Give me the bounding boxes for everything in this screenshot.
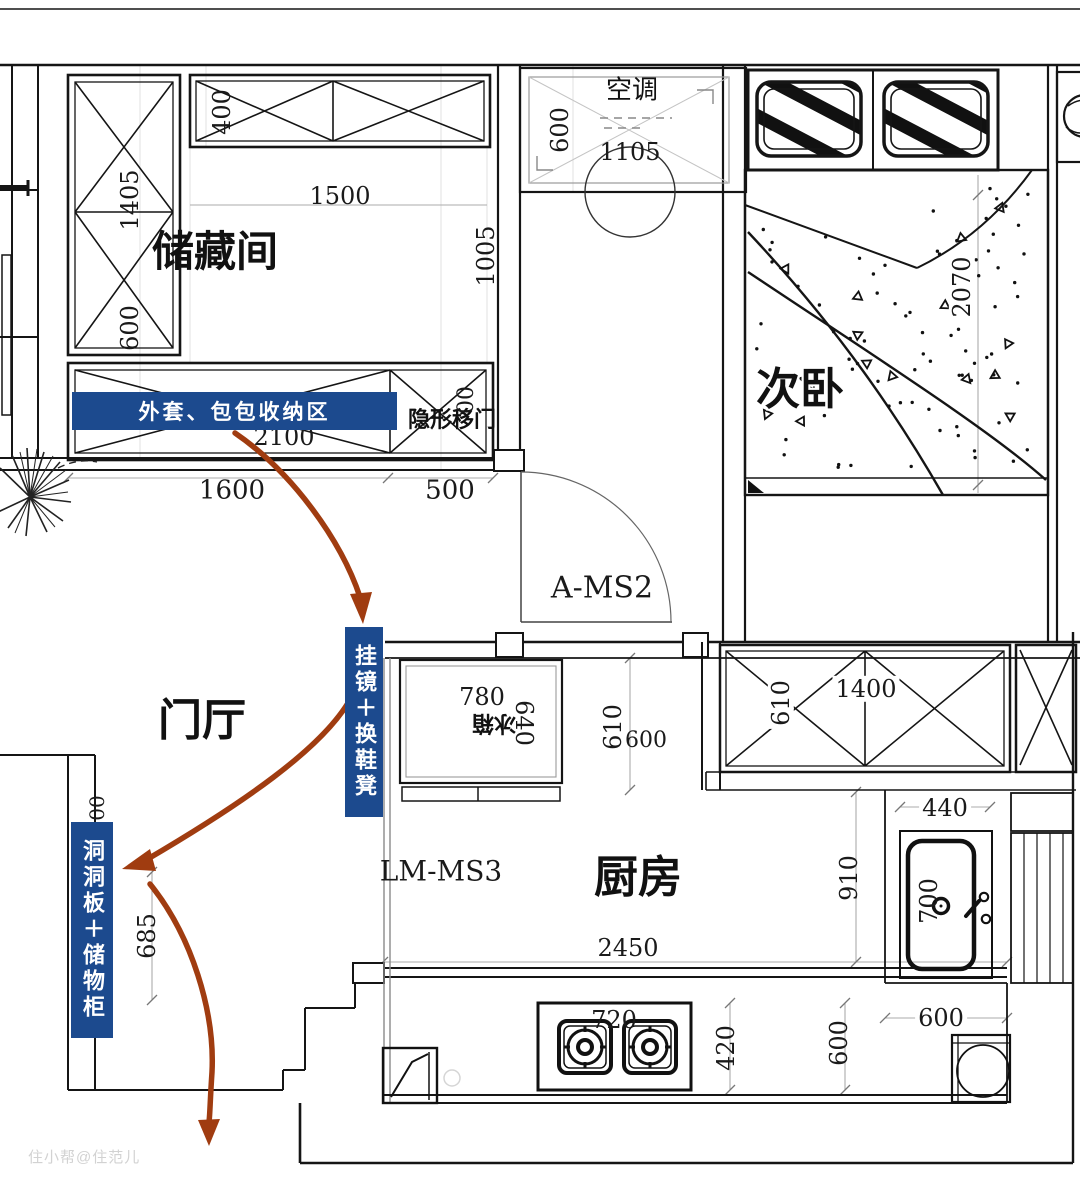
blanket-speckles (755, 187, 1030, 469)
dim-400: 400 (209, 89, 235, 135)
dim-1500: 1500 (309, 183, 370, 209)
room-label-bedroom: 次卧 (756, 366, 844, 414)
dim-700: 700 (916, 878, 942, 924)
dim-600-storage: 600 (117, 305, 143, 351)
dim-910: 910 (836, 855, 862, 901)
banner-coat-storage: 外套、包包收纳区 (72, 392, 397, 430)
kitchen-cabinets (706, 645, 1076, 831)
dim-780: 780 (459, 684, 505, 710)
dim-500: 500 (425, 477, 475, 506)
room-label-storage: 储藏间 (152, 229, 278, 275)
dim-610-gap: 610 (600, 704, 626, 750)
dim-610-cab: 610 (768, 677, 794, 729)
dim-1400: 1400 (832, 676, 899, 702)
dim-600-ac: 600 (547, 107, 573, 153)
dim-600-gap: 600 (625, 729, 667, 753)
arrowhead-down-2 (198, 1119, 220, 1146)
dim-2450: 2450 (597, 935, 658, 961)
flow-arrows (122, 433, 372, 1146)
dim-640: 640 (511, 700, 537, 746)
banner-pegboard: 洞洞板＋储物柜 (71, 822, 113, 1038)
dim-2070: 2070 (949, 253, 975, 320)
dish-rack (1011, 833, 1073, 983)
dim-600-stove: 600 (826, 1020, 852, 1066)
dimension-lines (68, 175, 1007, 1090)
ac-label: 空调 (606, 76, 658, 105)
nightstand (1057, 72, 1080, 162)
arrowhead-down-1 (350, 592, 372, 624)
dim-440: 440 (919, 795, 971, 821)
room-label-hall: 门厅 (158, 697, 246, 745)
dim-1105: 1105 (599, 139, 660, 165)
floor-plan: 储藏间 次卧 门厅 厨房 空调 隐形移门 冰箱 A-MS2 LM-MS3 400… (0, 0, 1080, 1198)
dim-1405: 1405 (117, 169, 143, 230)
sink-icon (900, 831, 992, 978)
room-label-kitchen: 厨房 (594, 854, 682, 902)
hidden-door-label: 隐形移门 (408, 408, 496, 432)
dim-partial-00: 00 (455, 386, 479, 414)
dim-685: 685 (134, 913, 160, 959)
arrowhead-left (122, 849, 156, 871)
watermark: 住小帮@住范儿 (28, 1146, 140, 1167)
door-code-ams2: A-MS2 (551, 572, 653, 605)
banner-mirror-bench: 挂镜＋换鞋凳 (345, 627, 383, 817)
dim-600-sink: 600 (915, 1005, 967, 1031)
dim-720: 720 (591, 1007, 637, 1033)
dim-1600: 1600 (199, 477, 265, 506)
dim-420: 420 (713, 1025, 739, 1071)
bed (735, 50, 1080, 495)
dim-1005: 1005 (473, 225, 499, 286)
washer-icon (952, 1035, 1010, 1102)
walls (0, 9, 1080, 1163)
dim-partial-00-hall: 00 (86, 795, 108, 820)
door-code-lmms3: LM-MS3 (380, 857, 502, 888)
plant-icon (0, 448, 97, 536)
floor-drain (444, 1070, 460, 1086)
